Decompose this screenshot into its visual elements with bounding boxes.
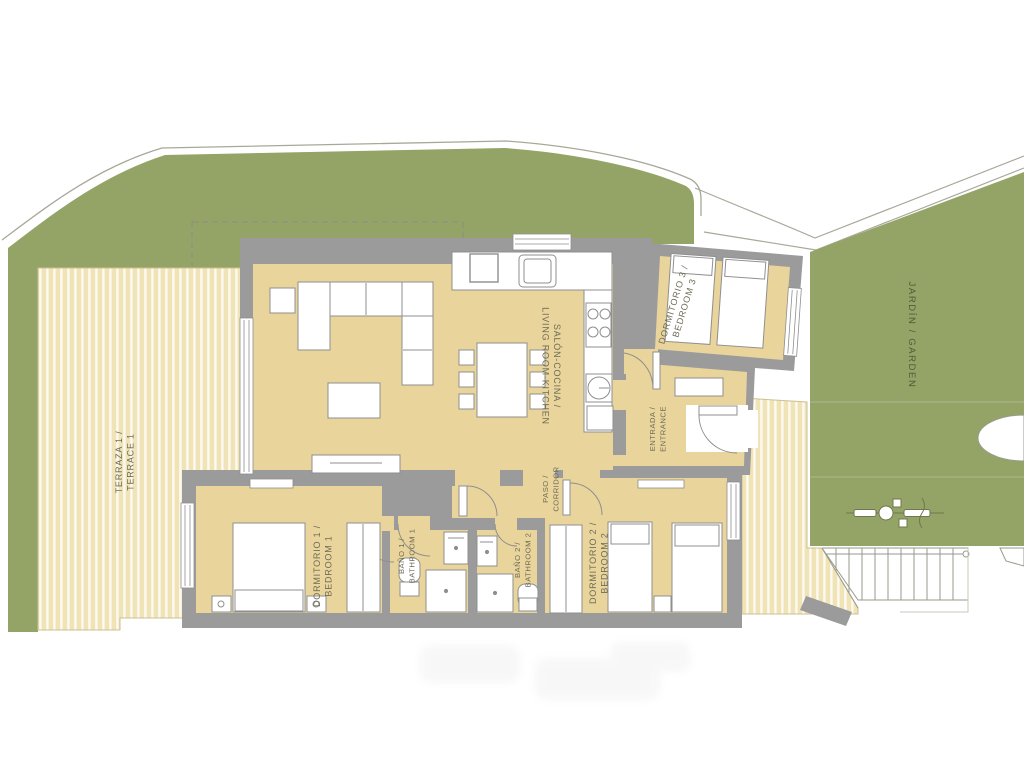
salon-label-en: LIVING ROOM-KITCHEN bbox=[541, 307, 551, 425]
bano1-label-en: BATHROOM 1 bbox=[408, 529, 417, 584]
label-entrada: ENTRADA / ENTRANCE bbox=[648, 406, 668, 452]
doorway-kitchen-entrada bbox=[611, 380, 630, 410]
dining-chair bbox=[459, 394, 474, 409]
vent-bedroom1 bbox=[250, 479, 293, 488]
dormitorio1-label-es: DORMITORIO 1 / bbox=[312, 525, 322, 607]
terraza-label-es: TERRAZA 1 / bbox=[114, 431, 124, 494]
window-bedroom1 bbox=[181, 503, 194, 588]
pillow-band bbox=[235, 590, 303, 611]
side-table bbox=[270, 288, 295, 313]
sofa-arm-left bbox=[298, 282, 330, 350]
label-salon: SALÓN-COCINA / LIVING ROOM-KITCHEN bbox=[541, 307, 563, 425]
window-bedroom2 bbox=[727, 482, 740, 540]
sofa-corner bbox=[402, 282, 433, 316]
dormitorio2-label-es: DORMITORIO 2 / bbox=[588, 522, 598, 604]
window-kitchen bbox=[513, 234, 571, 250]
kitchen-cabinet bbox=[587, 406, 613, 430]
label-jardin: JARDÍN / GARDEN bbox=[906, 282, 917, 389]
paso-label-en: CORRIDOR bbox=[552, 466, 561, 511]
washer-icon bbox=[586, 374, 612, 402]
nightstand bbox=[212, 596, 231, 612]
coffee-table bbox=[328, 383, 380, 418]
pillow bbox=[725, 259, 766, 279]
watermark bbox=[420, 642, 690, 700]
porch-opening bbox=[738, 410, 758, 448]
bedroom2-door-leaf bbox=[563, 480, 570, 515]
kitchen-appliance bbox=[470, 254, 498, 282]
dining-chair bbox=[459, 350, 474, 365]
paso-label-es: PASO / bbox=[541, 475, 550, 503]
bano2-label-en: BATHROOM 2 bbox=[524, 533, 533, 588]
toilet-tank-bath2 bbox=[519, 598, 537, 611]
bano2-label-es: BAÑO 2 / bbox=[513, 542, 522, 578]
pillow bbox=[611, 524, 649, 544]
label-dormitorio2: DORMITORIO 2 / BEDROOM 2 bbox=[588, 522, 610, 604]
window-living-terrace bbox=[240, 318, 253, 474]
label-terraza: TERRAZA 1 / TERRACE 1 bbox=[114, 431, 136, 494]
dining-table bbox=[477, 343, 527, 417]
front-door-leaf bbox=[699, 406, 737, 415]
jardin-label: JARDÍN / GARDEN bbox=[906, 282, 917, 389]
salon-label-es: SALÓN-COCINA / bbox=[552, 324, 562, 408]
terraza-label-en: TERRACE 1 bbox=[126, 433, 136, 491]
dormitorio1-label-en: BEDROOM 1 bbox=[324, 535, 334, 596]
floor-plan-drawing: TERRAZA 1 / TERRACE 1 SALÓN-COCINA / LIV… bbox=[0, 0, 1024, 768]
doorway-bath2 bbox=[495, 516, 517, 531]
corridor-door-leaf bbox=[459, 486, 467, 516]
dining-chair bbox=[459, 372, 474, 387]
tv-bench bbox=[312, 455, 400, 473]
entrada-label-en: ENTRANCE bbox=[659, 406, 668, 452]
bano1-label-es: BAÑO 1 / bbox=[397, 538, 406, 574]
entrada-closet bbox=[675, 378, 723, 396]
pillow bbox=[675, 525, 719, 546]
dormitorio2-label-en: BEDROOM 2 bbox=[600, 532, 610, 593]
shelf-bedroom2 bbox=[638, 480, 684, 488]
stair-landing bbox=[1000, 548, 1024, 566]
floor-plan-page: TERRAZA 1 / TERRACE 1 SALÓN-COCINA / LIV… bbox=[0, 0, 1024, 768]
entrada-label-es: ENTRADA / bbox=[648, 406, 657, 451]
bedroom3-door-leaf bbox=[653, 352, 660, 389]
nightstand bbox=[654, 596, 671, 612]
label-dormitorio1: DORMITORIO 1 / BEDROOM 1 bbox=[312, 525, 334, 607]
